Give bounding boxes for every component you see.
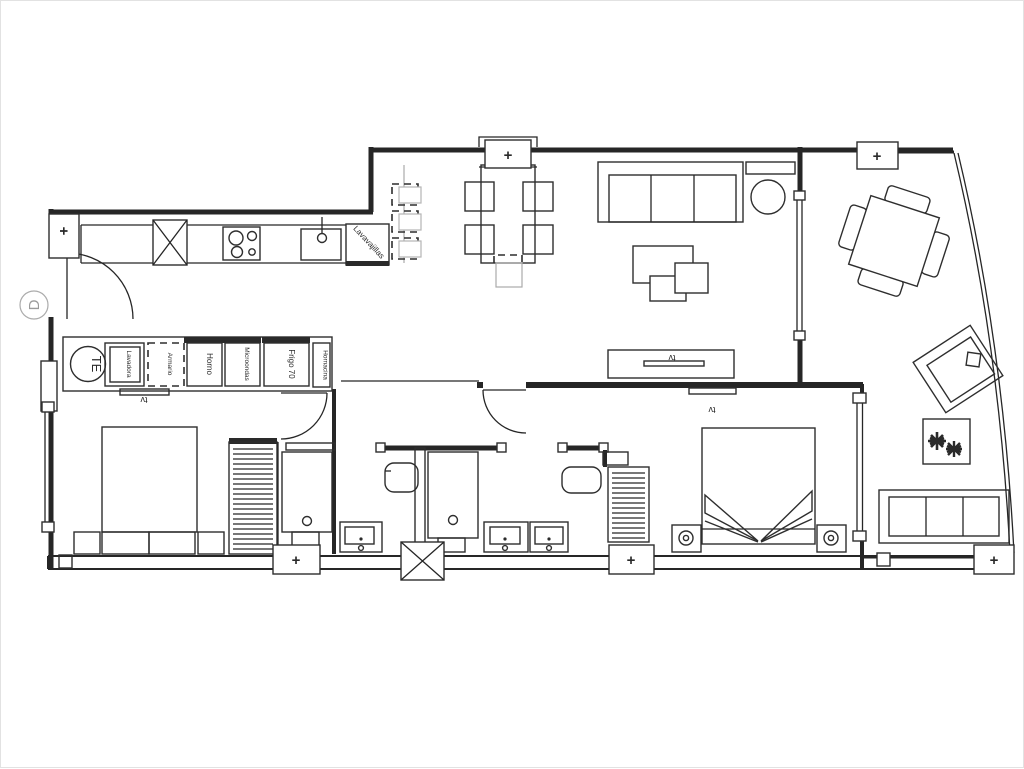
living-room: tv	[598, 162, 795, 378]
hall-bath-door	[483, 390, 526, 433]
appliance-row: TE Lavadora Armario Horno Microondas Fri…	[63, 337, 332, 391]
tv-label: tv	[668, 353, 676, 363]
side-shelf	[746, 162, 795, 174]
shower-2	[384, 452, 478, 552]
svg-text:Lavadora: Lavadora	[125, 350, 132, 377]
niche: Hornacina	[313, 343, 330, 387]
bathrooms	[340, 452, 601, 580]
shower-1	[282, 443, 335, 547]
svg-text:+: +	[55, 227, 72, 236]
window-box-bath: +	[273, 545, 320, 574]
svg-text:Microondas: Microondas	[243, 347, 250, 381]
svg-text:D: D	[26, 299, 43, 310]
sink-unit-1	[340, 522, 382, 552]
microwave: Microondas	[225, 343, 260, 386]
svg-text:+: +	[627, 552, 636, 569]
terrace	[828, 175, 1009, 543]
nightstand-master-left	[672, 525, 701, 552]
sofa	[598, 162, 743, 222]
shaft-box	[401, 542, 444, 580]
floor-plan-drawing: Lavavajillas TE Lavadora Armario	[1, 1, 1024, 769]
dining-table	[481, 165, 535, 263]
floor-plan-canvas: Lavavajillas TE Lavadora Armario	[0, 0, 1024, 768]
breakfast-bar	[392, 165, 421, 263]
window-box-terrace-bottom: +	[974, 545, 1014, 574]
terrace-corner-post	[877, 553, 890, 566]
bedroom-1: tv	[59, 389, 335, 568]
svg-text:Armario: Armario	[166, 353, 173, 376]
svg-text:tv: tv	[140, 395, 148, 405]
svg-text:+: +	[873, 148, 882, 165]
sink-unit-2a	[484, 522, 528, 552]
oven: Horno	[187, 343, 222, 386]
svg-text:+: +	[292, 552, 301, 569]
window-box-terrace-top: +	[857, 142, 898, 169]
wardrobe-master	[608, 467, 649, 542]
water-heater-label: TE	[89, 356, 104, 373]
round-side-table	[751, 180, 785, 214]
doors	[67, 253, 526, 439]
dishwasher: Lavavajillas	[346, 224, 389, 266]
toilet-2	[562, 467, 601, 493]
window-box-dining: +	[479, 137, 537, 168]
bed-master	[702, 428, 815, 544]
dining-chair-ghost-body	[496, 263, 522, 287]
terrace-table-set	[828, 175, 959, 306]
svg-text:Hornacina: Hornacina	[322, 350, 329, 380]
bed-1	[102, 427, 197, 554]
washing-machine: Lavadora	[105, 343, 144, 386]
dishwasher-label: Lavavajillas	[351, 224, 386, 260]
water-heater: TE	[71, 347, 106, 382]
coffee-tables	[633, 246, 708, 301]
svg-text:Frigo 70: Frigo 70	[287, 349, 296, 379]
window-box-entry: +	[49, 214, 79, 258]
window-box-master: +	[609, 545, 654, 574]
door-marker: D	[20, 291, 48, 319]
tv-cabinet: tv	[608, 350, 734, 378]
sink-unit-2b	[530, 522, 568, 552]
tv-bar-master: tv	[689, 388, 736, 415]
bathroom-divider-wall	[415, 448, 425, 546]
svg-text:tv: tv	[708, 405, 716, 415]
svg-text:+: +	[504, 147, 513, 164]
master-bedroom: tv	[603, 388, 846, 552]
outdoor-sofa	[879, 490, 1009, 543]
hob	[223, 227, 260, 260]
planter	[923, 419, 970, 464]
nightstand	[74, 532, 100, 554]
nightstand-master-right	[817, 525, 846, 552]
plant-icon	[928, 432, 962, 457]
svg-text:+: +	[990, 552, 999, 569]
wardrobe-niche: Armario	[148, 343, 184, 386]
slant-edge-joint	[966, 352, 981, 367]
kitchen-sink	[301, 217, 341, 260]
toilet-1	[385, 463, 418, 492]
dining-area	[465, 165, 553, 287]
svg-text:Horno: Horno	[205, 353, 214, 375]
nightstand	[198, 532, 224, 554]
bedroom1-door	[281, 393, 327, 439]
fridge: Frigo 70	[264, 343, 309, 386]
wardrobe-1	[229, 438, 277, 554]
column-box	[153, 220, 187, 265]
